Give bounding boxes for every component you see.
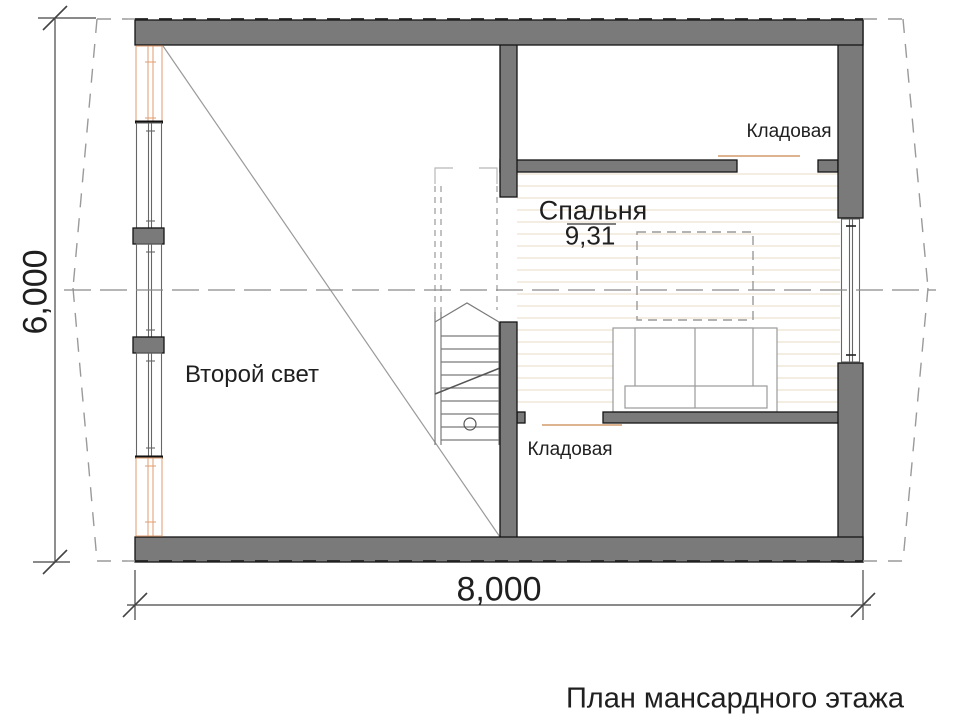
dimension-height-label: 6,000 [17, 249, 56, 334]
wall-storage-top-door-jamb [818, 160, 838, 172]
wall-right-lower [838, 363, 863, 562]
room-label-storage-top: Кладовая [746, 121, 831, 143]
floor-plan-canvas: Кладовая Спальня 9,31 Второй свет Кладов… [0, 0, 960, 720]
wall-storage-bottom-door-jamb [517, 412, 525, 423]
wall-storage-top-partition [500, 160, 737, 172]
staircase [435, 168, 500, 445]
room-label-second-light: Второй свет [185, 361, 319, 389]
wall-right-upper [838, 20, 863, 218]
wall-central-upper [500, 43, 517, 197]
room-label-storage-bottom: Кладовая [527, 439, 612, 461]
window-left-wood-top [136, 46, 162, 122]
bed [613, 328, 777, 412]
stair-handrail [435, 368, 500, 394]
void-diagonal-line [163, 46, 500, 537]
window-left-mullion-2 [133, 337, 164, 353]
wall-central-lower [500, 322, 517, 539]
window-left [133, 46, 164, 536]
room-area-bedroom: 9,31 [565, 221, 616, 252]
stair-newel-post [464, 418, 476, 430]
plan-title: План мансардного этажа [566, 683, 904, 716]
dimension-width-label: 8,000 [456, 571, 541, 610]
floor-plan-drawing [0, 0, 960, 720]
bed-mattress [635, 328, 753, 388]
bed-pillows [625, 386, 767, 408]
wall-storage-bottom-partition [603, 412, 840, 423]
wall-bottom [135, 537, 863, 562]
window-left-wood-bottom [136, 458, 162, 536]
window-left-mullion-1 [133, 228, 164, 244]
wall-top [135, 20, 863, 45]
